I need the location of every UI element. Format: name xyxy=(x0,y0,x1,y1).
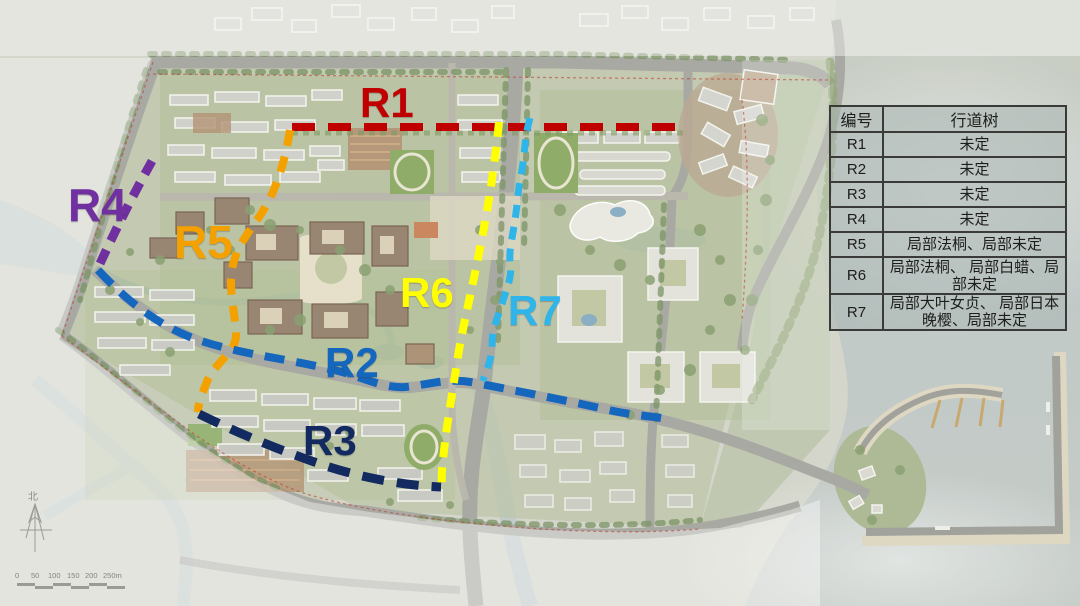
legend-cell-code: R2 xyxy=(830,157,883,182)
legend-cell-trees: 未定 xyxy=(883,157,1066,182)
scale-bar-segments xyxy=(17,583,129,589)
legend-header-trees: 行道树 xyxy=(883,106,1066,132)
route-label-r5: R5 xyxy=(174,219,233,265)
legend-cell-trees: 未定 xyxy=(883,207,1066,232)
legend-cell-trees: 局部大叶女贞、 局部日本晚樱、局部未定 xyxy=(883,294,1066,330)
legend-table-body: R1 未定 R2 未定 R3 未定 R4 未定 R5 局部法桐、局部未定 R6 … xyxy=(830,132,1066,330)
legend-row: R7 局部大叶女贞、 局部日本晚樱、局部未定 xyxy=(830,294,1066,330)
site-plan-canvas: R1 R2 R3 R4 R5 R6 R7 编号 行道树 R1 未定 R2 未定 … xyxy=(0,0,1080,606)
legend-row: R2 未定 xyxy=(830,157,1066,182)
route-label-r2: R2 xyxy=(325,342,379,384)
legend-cell-code: R5 xyxy=(830,232,883,257)
route-label-r4: R4 xyxy=(68,182,127,228)
legend-cell-code: R3 xyxy=(830,182,883,207)
north-label: 北 xyxy=(28,488,38,503)
route-label-r3: R3 xyxy=(303,420,357,462)
legend-row: R6 局部法桐、 局部白蜡、局部未定 xyxy=(830,257,1066,294)
route-label-r7: R7 xyxy=(508,290,562,332)
route-label-r6: R6 xyxy=(400,272,454,314)
north-arrow: 北 xyxy=(14,488,66,568)
scale-tick-200: 200 xyxy=(85,571,98,580)
legend-cell-code: R7 xyxy=(830,294,883,330)
legend-row: R5 局部法桐、局部未定 xyxy=(830,232,1066,257)
legend-header-code: 编号 xyxy=(830,106,883,132)
legend-cell-trees: 局部法桐、 局部白蜡、局部未定 xyxy=(883,257,1066,294)
route-label-r1: R1 xyxy=(360,82,414,124)
scale-tick-150: 150 xyxy=(67,571,80,580)
legend-cell-trees: 局部法桐、局部未定 xyxy=(883,232,1066,257)
legend-row: R3 未定 xyxy=(830,182,1066,207)
scale-tick-0: 0 xyxy=(15,571,19,580)
scale-tick-50: 50 xyxy=(31,571,39,580)
scale-tick-250: 250m xyxy=(103,571,122,580)
legend-header-row: 编号 行道树 xyxy=(830,106,1066,132)
legend-cell-code: R4 xyxy=(830,207,883,232)
legend-cell-trees: 未定 xyxy=(883,182,1066,207)
legend-row: R1 未定 xyxy=(830,132,1066,157)
scale-bar: 0 50 100 150 200 250m xyxy=(14,571,140,595)
street-tree-legend-table: 编号 行道树 R1 未定 R2 未定 R3 未定 R4 未定 R5 局部法桐、局… xyxy=(829,105,1067,331)
legend-cell-trees: 未定 xyxy=(883,132,1066,157)
legend-row: R4 未定 xyxy=(830,207,1066,232)
legend-cell-code: R1 xyxy=(830,132,883,157)
scale-tick-100: 100 xyxy=(48,571,61,580)
legend-cell-code: R6 xyxy=(830,257,883,294)
